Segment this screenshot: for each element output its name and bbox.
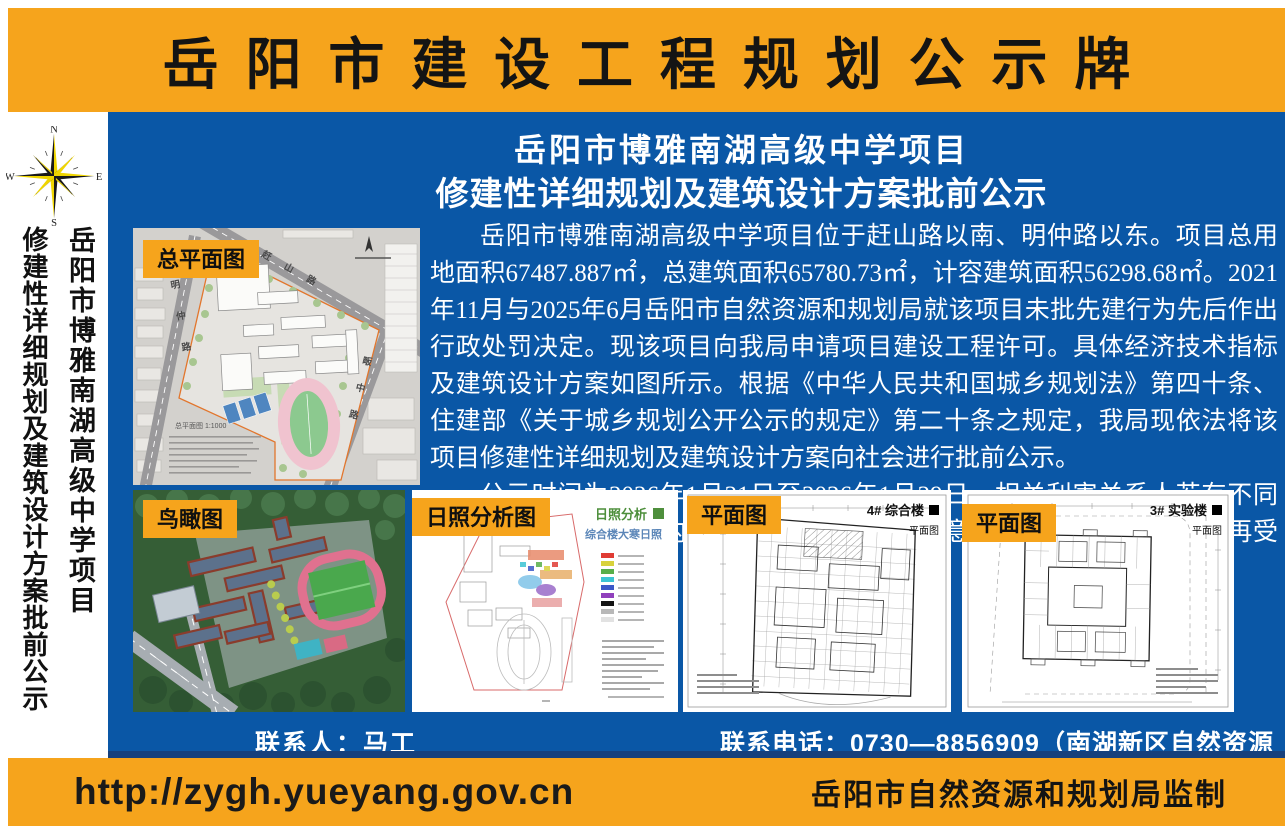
sunshine-subtitle: 综合楼大寒日照: [585, 526, 662, 542]
aerial-view-tag: 鸟瞰图: [143, 500, 237, 538]
site-plan-caption: 总平面图 1:1000: [175, 421, 226, 430]
compass-w-label: W: [6, 172, 15, 183]
black-square-icon: [1212, 505, 1222, 515]
compass-n-label: N: [50, 126, 58, 135]
footer-bar: http://zygh.yueyang.gov.cn 岳阳市自然资源和规划局监制: [8, 758, 1285, 826]
floor-plan-4-panel: 4# 综合楼 平面图 平面图: [683, 490, 951, 712]
black-square-icon: [929, 505, 939, 515]
main-panel: 岳阳市博雅南湖高级中学项目 修建性详细规划及建筑设计方案批前公示: [108, 112, 1285, 758]
floor-plan-3-building-label: 3# 实验楼: [1150, 500, 1207, 519]
site-plan-tag: 总平面图: [143, 240, 259, 278]
sunshine-tag: 日照分析图: [412, 498, 550, 536]
sunshine-legend: [601, 550, 644, 625]
floor-plan-4-header: 4# 综合楼 平面图: [867, 500, 939, 537]
footer-supervisor: 岳阳市自然资源和规划局监制: [811, 770, 1227, 814]
compass-rose-icon: N S W E: [6, 126, 102, 226]
compass-e-label: E: [96, 172, 102, 183]
navy-divider: [108, 751, 1285, 758]
floor-plan-3-notes: [1156, 664, 1218, 698]
sidebar: N S W E 岳阳市博雅南湖高级中学项目 修建性详细规划及建筑设计方案批前公示: [0, 112, 108, 758]
project-title-line2: 修建性详细规划及建筑设计方案批前公示: [198, 172, 1285, 216]
floor-plan-3-header: 3# 实验楼 平面图: [1150, 500, 1222, 537]
sidebar-vertical-title: 岳阳市博雅南湖高级中学项目 修建性详细规划及建筑设计方案批前公示: [16, 226, 100, 751]
sunshine-legend-title: 日照分析: [595, 504, 647, 523]
footer-url: http://zygh.yueyang.gov.cn: [74, 771, 574, 813]
green-square-icon: [653, 508, 664, 519]
project-title-line1: 岳阳市博雅南湖高级中学项目: [198, 128, 1285, 172]
site-plan-panel: 赶山路 明仲路 畈中路 总平面图 1:1000 总平面图: [133, 228, 420, 485]
sunshine-analysis-panel: 日照分析 综合楼大寒日照 日照分析图: [412, 490, 678, 712]
banner: 岳阳市建设工程规划公示牌: [8, 8, 1285, 112]
sidebar-title-line1: 岳阳市博雅南湖高级中学项目: [61, 226, 100, 751]
floor-plan-4-notes: [697, 670, 759, 698]
notice-paragraph-1: 岳阳市博雅南湖高级中学项目位于赶山路以南、明仲路以东。项目总用地面积67487.…: [430, 218, 1278, 477]
floor-plan-4-sub-label: 平面图: [867, 522, 939, 537]
compass-s-label: S: [51, 218, 57, 226]
notice-board: 岳阳市建设工程规划公示牌 N: [0, 0, 1285, 826]
floor-plan-3-panel: 3# 实验楼 平面图 平面图: [962, 490, 1234, 712]
sunshine-notes: [602, 636, 664, 694]
aerial-view-panel: 鸟瞰图: [133, 490, 405, 712]
floor-plan-3-sub-label: 平面图: [1150, 522, 1222, 537]
floor-plan-4-tag: 平面图: [687, 496, 781, 534]
sidebar-title-line2: 修建性详细规划及建筑设计方案批前公示: [16, 226, 53, 751]
sunshine-legend-title-row: 日照分析: [595, 504, 664, 523]
banner-title: 岳阳市建设工程规划公示牌: [136, 20, 1157, 101]
floor-plan-4-building-label: 4# 综合楼: [867, 500, 924, 519]
project-title: 岳阳市博雅南湖高级中学项目 修建性详细规划及建筑设计方案批前公示: [108, 128, 1285, 216]
floor-plan-3-tag: 平面图: [962, 504, 1056, 542]
